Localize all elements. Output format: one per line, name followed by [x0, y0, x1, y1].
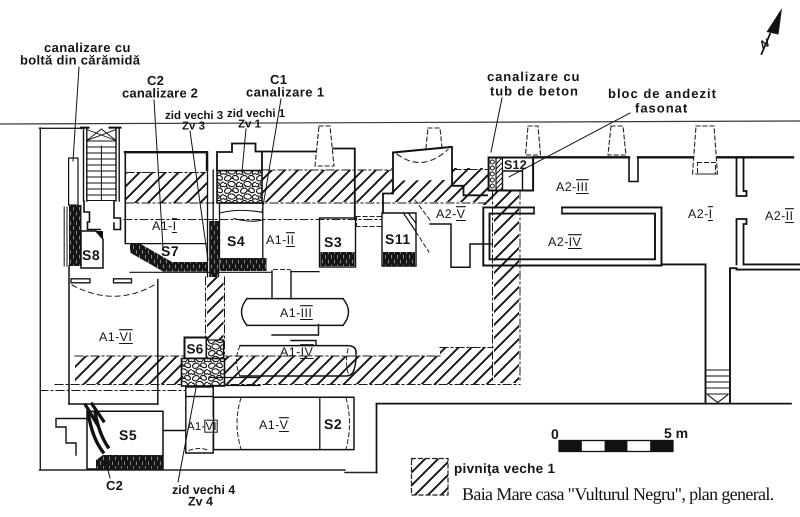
svg-text:Zv 1: Zv 1 — [238, 119, 262, 131]
svg-text:A1-VI: A1-VI — [99, 330, 132, 344]
svg-text:A1-II: A1-II — [266, 233, 294, 247]
svg-text:fasonat: fasonat — [635, 101, 688, 116]
svg-text:canalizare cu: canalizare cu — [487, 69, 580, 84]
svg-text:canalizare 2: canalizare 2 — [122, 86, 198, 101]
svg-text:0: 0 — [551, 426, 559, 442]
svg-text:canalizare 1: canalizare 1 — [246, 85, 325, 100]
svg-text:S3: S3 — [324, 234, 342, 250]
svg-text:S11: S11 — [385, 231, 411, 247]
svg-text:A1-III: A1-III — [280, 306, 312, 320]
svg-text:Zv 4: Zv 4 — [188, 495, 213, 509]
svg-text:A2-IV: A2-IV — [548, 235, 582, 249]
svg-text:A2-II: A2-II — [765, 209, 793, 223]
svg-text:S2: S2 — [324, 416, 342, 432]
svg-text:boltă din cărămidă: boltă din cărămidă — [20, 53, 141, 68]
svg-text:A1-IV: A1-IV — [280, 345, 314, 359]
svg-text:Baia Mare casa "Vulturul Negru: Baia Mare casa "Vulturul Negru", plan ge… — [462, 484, 774, 504]
svg-text:Zv 3: Zv 3 — [182, 121, 205, 133]
svg-text:S6: S6 — [187, 342, 204, 357]
svg-text:5 m: 5 m — [664, 425, 688, 441]
svg-text:tub de beton: tub de beton — [490, 84, 579, 99]
svg-text:A1-I: A1-I — [152, 219, 177, 233]
svg-text:A1-VI: A1-VI — [187, 421, 217, 433]
svg-text:C2: C2 — [106, 478, 123, 493]
svg-text:A2-I: A2-I — [688, 207, 713, 221]
svg-text:A2-III: A2-III — [556, 180, 588, 194]
svg-text:pivniţa veche 1: pivniţa veche 1 — [454, 461, 555, 476]
svg-text:S8: S8 — [82, 247, 100, 263]
svg-text:S5: S5 — [119, 427, 137, 443]
svg-text:S4: S4 — [227, 233, 245, 249]
svg-text:bloc de andezit: bloc de andezit — [608, 86, 717, 101]
svg-text:A2-V: A2-V — [436, 207, 466, 221]
svg-text:A1-V: A1-V — [259, 418, 289, 432]
svg-text:S7: S7 — [161, 243, 179, 259]
